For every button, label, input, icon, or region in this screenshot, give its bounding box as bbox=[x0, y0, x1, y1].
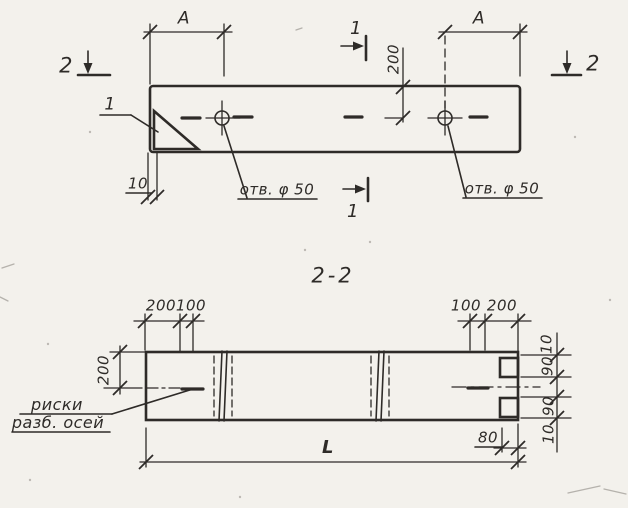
dim-200-left-label: 200 bbox=[97, 355, 112, 385]
dim-200-top-view-label: 200 bbox=[387, 44, 402, 74]
section-1-top-label: 1 bbox=[350, 20, 362, 38]
dim-a-left-label: A bbox=[178, 11, 190, 28]
section-mark-1-top bbox=[341, 36, 366, 60]
dim-200-top-right-label: 200 bbox=[487, 299, 517, 314]
dim-100-top-right-label: 100 bbox=[451, 299, 481, 314]
section-view-axis-marks bbox=[146, 387, 540, 389]
dim-10-right-bottom-label: 10 bbox=[542, 424, 557, 444]
section-view-beam-outline bbox=[146, 352, 518, 420]
section-mark-2-left bbox=[78, 51, 110, 75]
axes-label-line2: разб. осей bbox=[12, 415, 104, 431]
hole-right-label: отв. φ 50 bbox=[465, 182, 540, 197]
dim-90-right-lower-label: 90 bbox=[542, 396, 557, 416]
top-view-dim-a-right bbox=[438, 24, 527, 108]
dim-10-right-top-label: 10 bbox=[540, 334, 555, 354]
section-view-title: 2-2 bbox=[311, 266, 354, 287]
section-2-left-label: 2 bbox=[59, 56, 73, 77]
section-view-dims-top-right bbox=[458, 314, 531, 351]
section-view-break-left bbox=[214, 351, 232, 421]
section-view-dims-top-left bbox=[134, 314, 204, 351]
callout-1-label: 1 bbox=[104, 97, 115, 114]
axes-label-line1: риски bbox=[31, 397, 83, 413]
section-mark-2-right bbox=[552, 51, 581, 75]
drawing-sheet: A A 200 1 1 2 2 1 отв. φ 50 отв. φ 50 10… bbox=[0, 0, 628, 508]
section-view-break-right bbox=[371, 351, 389, 421]
dim-10-top-view-label: 10 bbox=[128, 177, 148, 192]
top-view-dim-a-left bbox=[143, 24, 232, 84]
dim-90-right-upper-label: 90 bbox=[541, 356, 556, 376]
dim-a-right-label: A bbox=[473, 11, 485, 28]
top-view-beam-outline bbox=[150, 86, 520, 152]
section-1-bottom-label: 1 bbox=[347, 203, 359, 221]
hole-left-label: отв. φ 50 bbox=[240, 183, 315, 198]
dim-100-top-left-label: 100 bbox=[176, 299, 206, 314]
dim-80-label: 80 bbox=[478, 431, 498, 446]
dim-length-label: L bbox=[322, 439, 334, 457]
dim-200-top-left-label: 200 bbox=[146, 299, 176, 314]
section-2-right-label: 2 bbox=[586, 54, 600, 75]
section-mark-1-bottom bbox=[343, 178, 368, 201]
top-view-holes bbox=[182, 101, 487, 135]
